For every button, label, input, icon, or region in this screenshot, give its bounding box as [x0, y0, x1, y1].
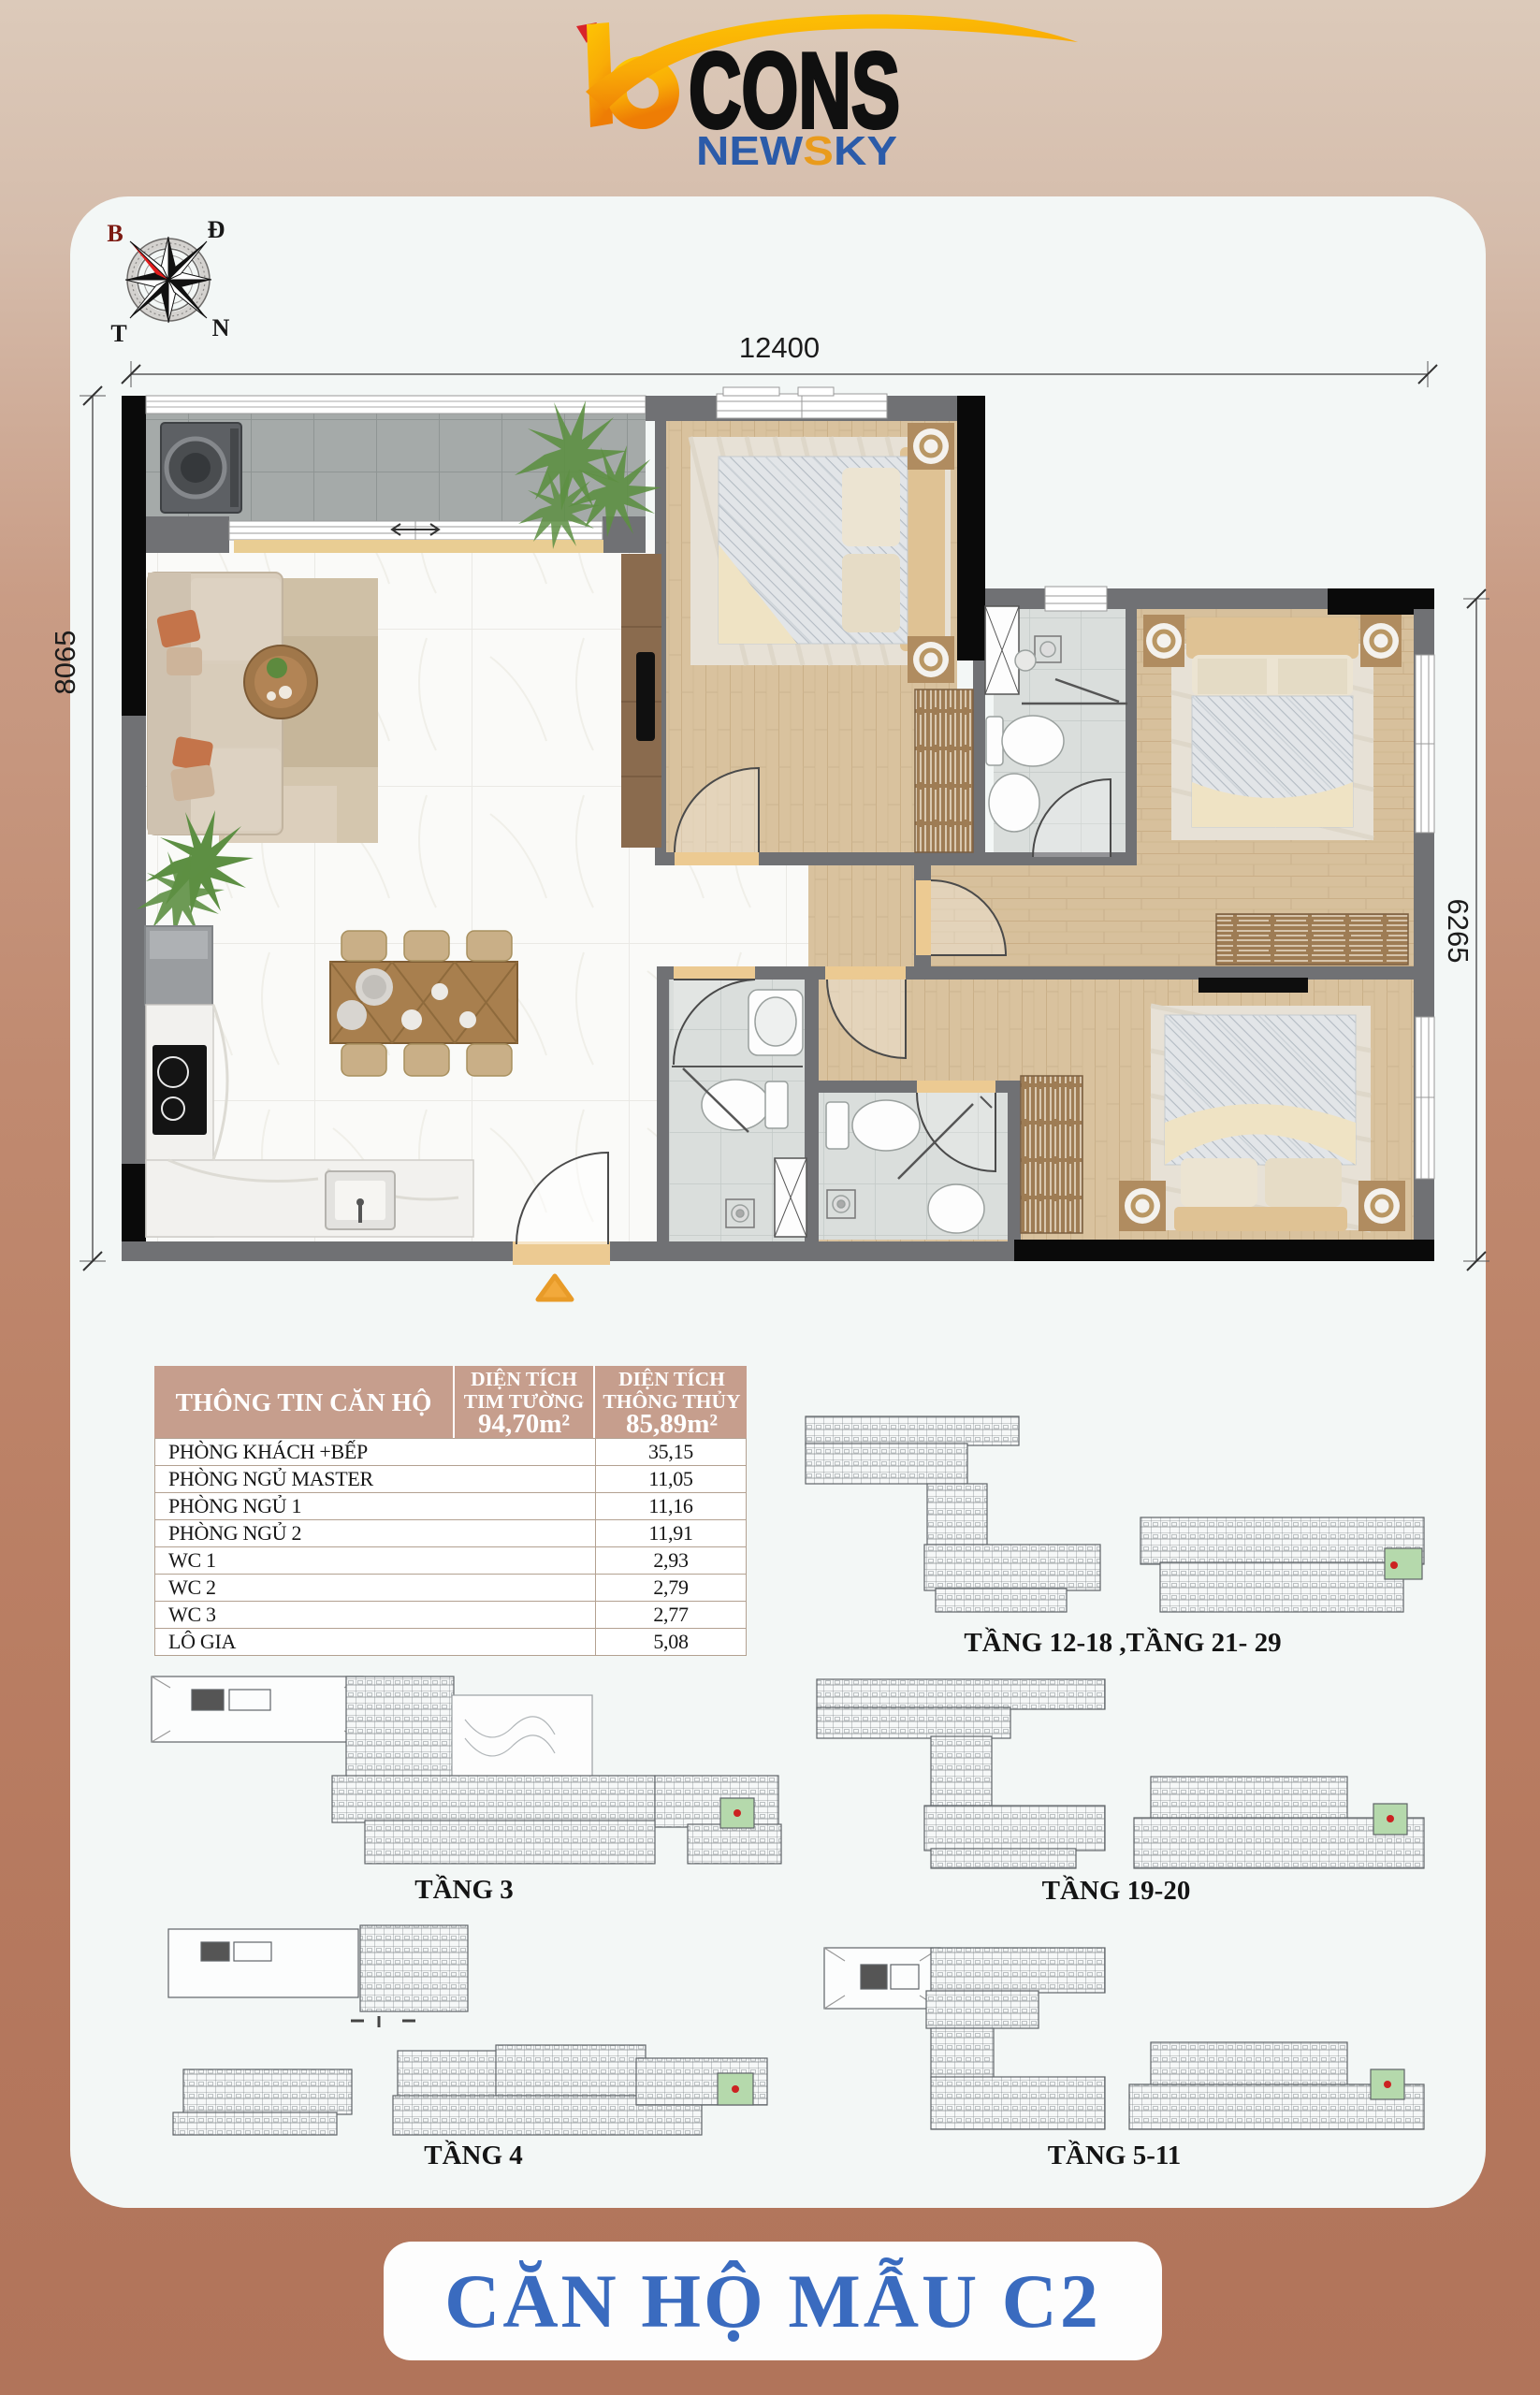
svg-text:Đ: Đ [208, 216, 225, 243]
svg-text:T: T [110, 320, 126, 347]
svg-text:B: B [107, 220, 123, 247]
svg-text:8065: 8065 [49, 631, 81, 695]
svg-text:12400: 12400 [739, 331, 820, 364]
svg-text:6265: 6265 [1442, 899, 1475, 964]
svg-text:N: N [212, 314, 230, 341]
svg-text:NEWSKY: NEWSKY [696, 128, 897, 174]
